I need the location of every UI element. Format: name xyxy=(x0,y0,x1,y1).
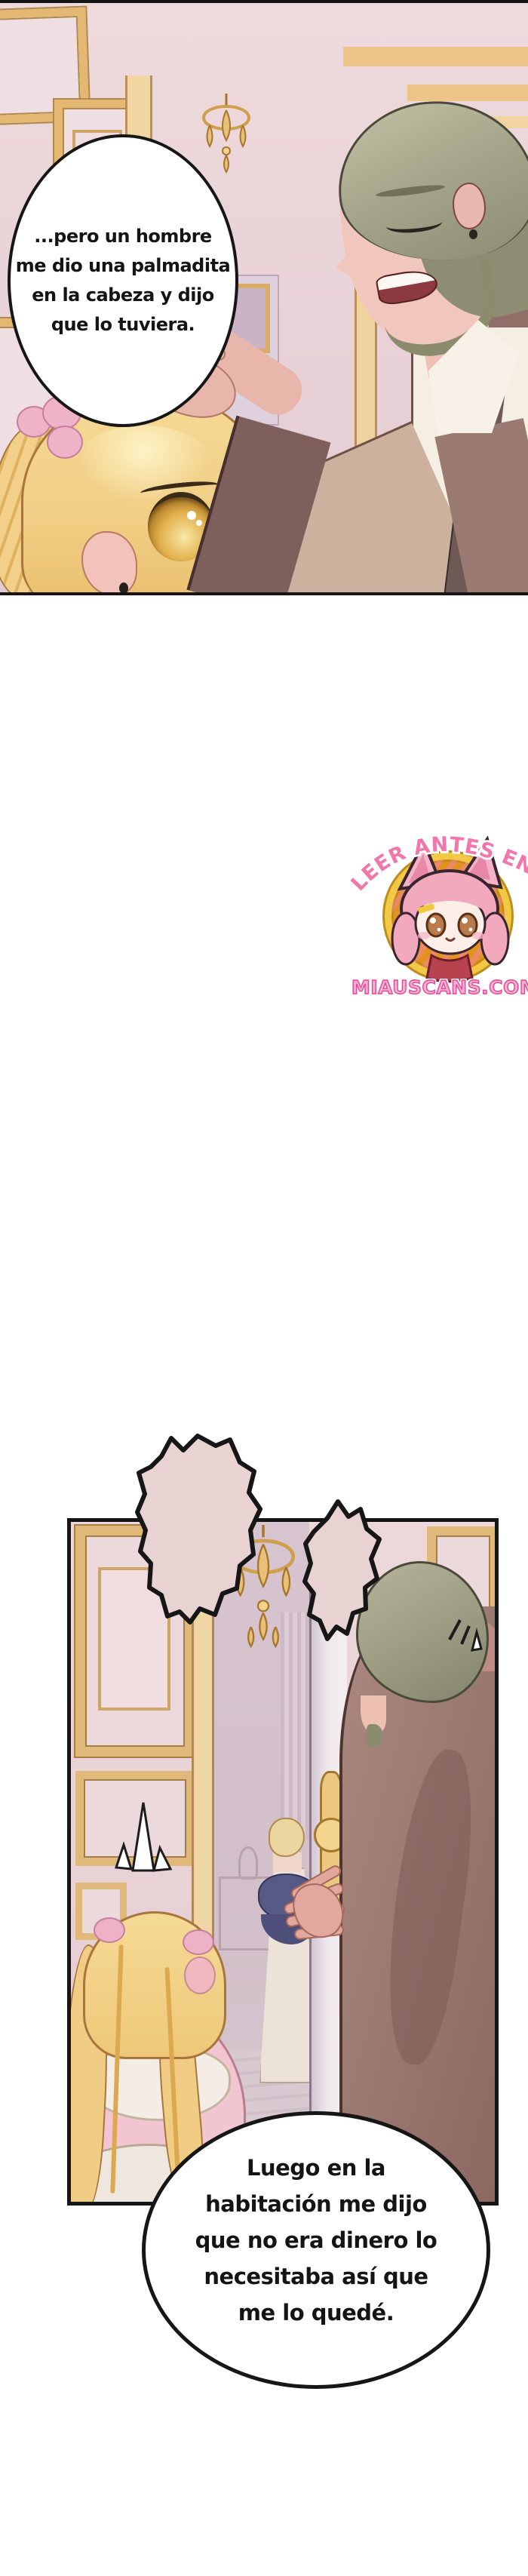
speech-bubble-1: ...pero un hombre me dio una palmadita e… xyxy=(8,134,238,427)
bubble1-line: en la cabeza y dijo xyxy=(32,281,214,310)
bubble1-line: ...pero un hombre xyxy=(34,222,211,251)
pink-scrunchie xyxy=(94,1917,125,1943)
eye-sparkle xyxy=(187,511,196,520)
man-beard xyxy=(367,1724,383,1747)
wall-trim xyxy=(407,85,528,101)
eye-sparkle xyxy=(196,520,202,526)
bubble1-line: que lo tuviera. xyxy=(51,310,195,340)
watermark-site-text: MIAUSCANS.COM xyxy=(347,976,528,998)
table-lamp xyxy=(238,1846,258,1880)
watermark: LEER ANTES EN MIAUSCANS.COM xyxy=(355,815,528,1011)
bubble2-line: Luego en la xyxy=(247,2150,385,2186)
surprise-marks xyxy=(442,1611,490,1659)
bubble2-line: me lo quedé. xyxy=(238,2295,394,2331)
bubble1-line: me dio una palmadita xyxy=(16,251,231,281)
pink-scrunchie xyxy=(183,1929,214,1955)
speech-bubble-2: Luego en la habitación me dijo que no er… xyxy=(142,2111,490,2389)
watermark-arc-text: LEER ANTES EN xyxy=(355,815,528,905)
girl-ear xyxy=(184,1957,216,1994)
girl-earring xyxy=(119,583,128,594)
man-ear xyxy=(453,183,486,229)
man-earring xyxy=(469,229,477,239)
bubble2-line: necesitaba así que xyxy=(204,2258,428,2295)
shout-bubble-left xyxy=(137,1436,260,1622)
chandelier xyxy=(189,92,264,175)
shout-bubbles xyxy=(128,1430,388,1649)
webtoon-page: ...pero un hombre me dio una palmadita e… xyxy=(0,0,528,2576)
wall-trim xyxy=(343,47,528,66)
bubble2-line: habitación me dijo xyxy=(205,2186,427,2222)
svg-text:LEER ANTES EN: LEER ANTES EN xyxy=(347,833,528,896)
startle-spike xyxy=(115,1801,175,1877)
shout-bubble-right xyxy=(305,1502,379,1639)
watermark-arc-label: LEER ANTES EN xyxy=(347,833,528,896)
bubble2-line: que no era dinero lo xyxy=(195,2222,437,2258)
